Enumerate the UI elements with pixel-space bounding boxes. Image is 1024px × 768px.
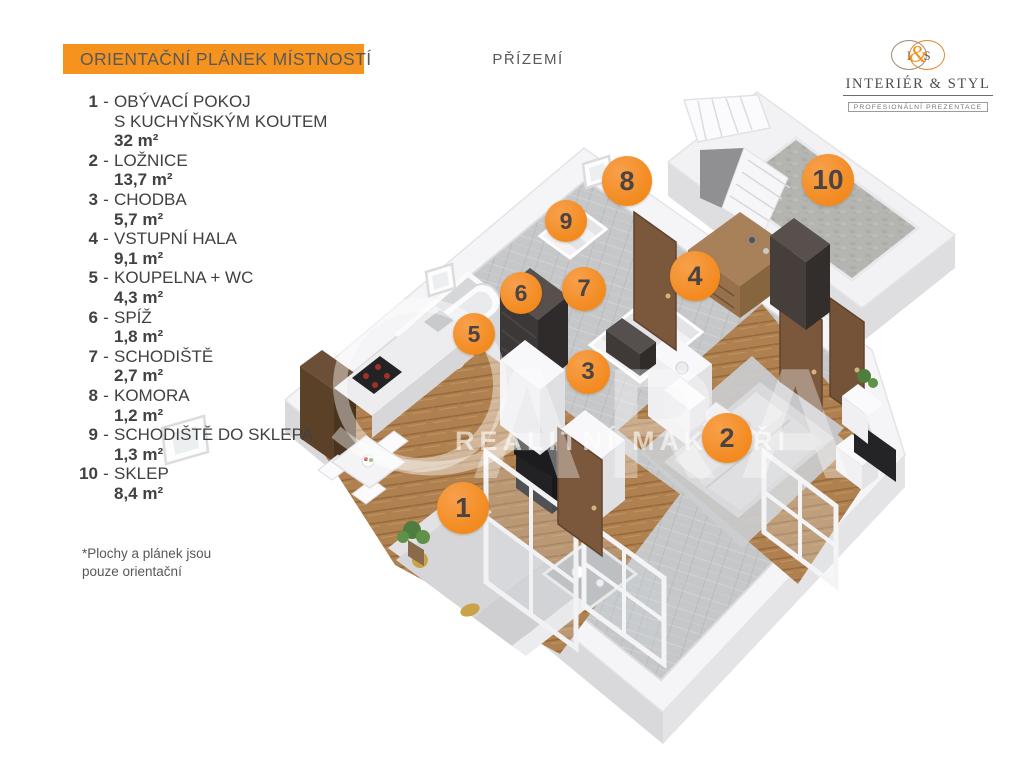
page-title: ORIENTAČNÍ PLÁNEK MÍSTNOSTÍ bbox=[80, 49, 371, 69]
legend-item-3: 3-CHODBA bbox=[70, 190, 350, 210]
logo-monogram-icon: IS & bbox=[843, 40, 993, 74]
watermark-text: REALITNÍ MAKLÉŘI bbox=[455, 425, 790, 456]
room-legend: 1-OBÝVACÍ POKOJ S KUCHYŇSKÝM KOUTEM 32 m… bbox=[70, 92, 350, 503]
legend-item-4: 4-VSTUPNÍ HALA bbox=[70, 229, 350, 249]
legend-item-6: 6-SPÍŽ bbox=[70, 308, 350, 328]
legend-item-2: 2-LOŽNICE bbox=[70, 151, 350, 171]
legend-item-8: 8-KOMORA bbox=[70, 386, 350, 406]
watermark-letters: ARA bbox=[470, 336, 872, 512]
logo-name: INTERIÉR & STYL bbox=[843, 76, 993, 96]
legend-item-5: 5-KOUPELNA + WC bbox=[70, 268, 350, 288]
logo-tagline: PROFESIONÁLNÍ PREZENTACE bbox=[848, 102, 989, 112]
legend-item-7: 7-SCHODIŠTĚ bbox=[70, 347, 350, 367]
legend-item-1: 1-OBÝVACÍ POKOJ bbox=[70, 92, 350, 112]
legend-item-9: 9-SCHODIŠTĚ DO SKLEPA bbox=[70, 425, 350, 445]
disclaimer-footnote: *Plochy a plánek jsou pouze orientační bbox=[82, 545, 211, 581]
floor-label: PŘÍZEMÍ bbox=[448, 51, 608, 68]
company-logo: IS & INTERIÉR & STYL PROFESIONÁLNÍ PREZE… bbox=[843, 40, 993, 114]
legend-item-10: 10-SKLEP bbox=[70, 464, 350, 484]
page-title-banner: ORIENTAČNÍ PLÁNEK MÍSTNOSTÍ bbox=[63, 44, 364, 74]
